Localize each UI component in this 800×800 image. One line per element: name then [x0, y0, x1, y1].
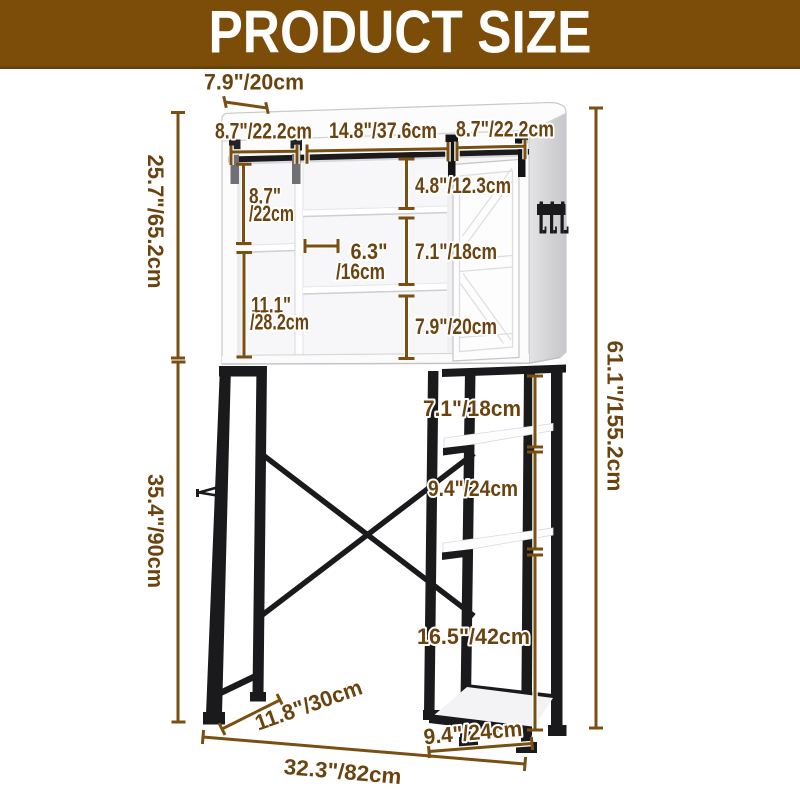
svg-text:7.1"/18cm: 7.1"/18cm	[415, 239, 497, 264]
svg-text:35.4"/90cm: 35.4"/90cm	[143, 474, 168, 588]
svg-text:7.9"/20cm: 7.9"/20cm	[204, 70, 304, 95]
svg-text:/28.2cm: /28.2cm	[250, 310, 309, 335]
svg-text:25.7"/65.2cm: 25.7"/65.2cm	[143, 155, 168, 289]
svg-text:61.1"/155.2cm: 61.1"/155.2cm	[603, 341, 628, 492]
svg-text:8.7"/22.2cm: 8.7"/22.2cm	[215, 119, 312, 144]
svg-text:7.1"/18cm: 7.1"/18cm	[423, 396, 521, 421]
svg-text:/22cm: /22cm	[249, 201, 294, 226]
svg-text:9.4"/24cm: 9.4"/24cm	[428, 476, 518, 501]
svg-text:4.8"/12.3cm: 4.8"/12.3cm	[415, 173, 511, 198]
svg-text:7.9"/20cm: 7.9"/20cm	[415, 314, 497, 339]
svg-text:14.8"/37.6cm: 14.8"/37.6cm	[329, 118, 437, 143]
svg-text:16.5"/42cm: 16.5"/42cm	[417, 624, 530, 649]
svg-text:8.7"/22.2cm: 8.7"/22.2cm	[456, 117, 554, 142]
svg-text:/16cm: /16cm	[336, 259, 385, 284]
svg-text:PRODUCT SIZE: PRODUCT SIZE	[209, 0, 592, 66]
